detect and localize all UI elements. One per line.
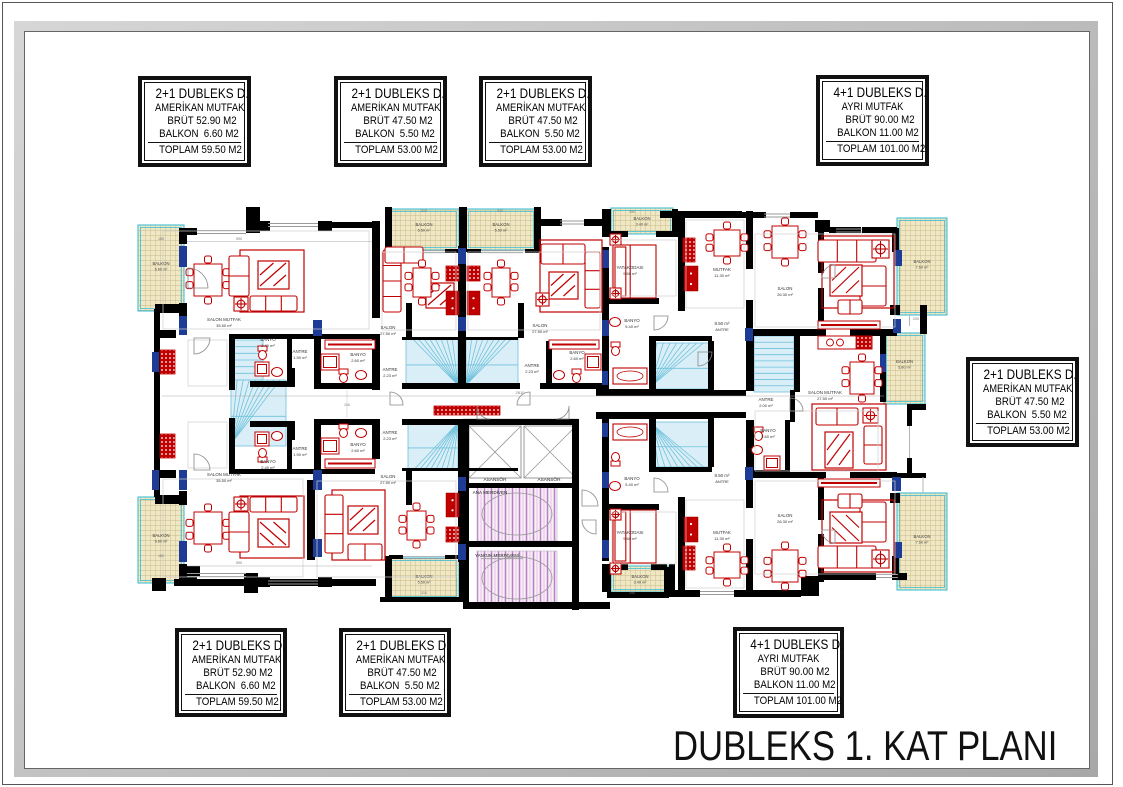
svg-text:6.60 m²: 6.60 m² [155, 540, 169, 544]
svg-text:SALON: SALON [533, 323, 548, 328]
svg-text:SALON: SALON [778, 286, 793, 291]
svg-text:BANYO: BANYO [624, 476, 640, 481]
svg-text:3.40 m²: 3.40 m² [634, 581, 648, 585]
svg-text:11.30 m²: 11.30 m² [714, 273, 730, 278]
svg-text:1.90 m²: 1.90 m² [293, 452, 307, 457]
svg-text:26.30 m²: 26.30 m² [777, 292, 793, 297]
svg-text:27.50 m²: 27.50 m² [380, 331, 396, 336]
svg-text:26.30 m²: 26.30 m² [777, 519, 793, 524]
svg-text:BALKON: BALKON [416, 222, 433, 227]
svg-text:2.40 m²: 2.40 m² [261, 343, 275, 348]
svg-text:BALKON: BALKON [914, 534, 931, 539]
svg-text:ASANSÖR: ASANSÖR [484, 476, 508, 482]
svg-text:ANTRE: ANTRE [759, 397, 774, 402]
svg-text:7.60 m²: 7.60 m² [916, 266, 930, 270]
svg-text:590: 590 [236, 561, 242, 565]
svg-text:590: 590 [236, 237, 242, 241]
svg-text:ANA MERDİVEN: ANA MERDİVEN [473, 489, 508, 495]
svg-text:BANYO: BANYO [260, 337, 276, 342]
svg-text:35.50 m²: 35.50 m² [216, 323, 232, 328]
svg-text:180: 180 [158, 554, 164, 558]
svg-text:ANTRE: ANTRE [293, 446, 308, 451]
svg-text:BALKON: BALKON [896, 359, 913, 364]
svg-text:180: 180 [158, 237, 164, 241]
svg-text:9.60 m²: 9.60 m² [623, 536, 637, 541]
svg-text:2.23 m²: 2.23 m² [525, 369, 539, 374]
svg-text:27.50 m²: 27.50 m² [532, 329, 548, 334]
svg-text:8.50 m²: 8.50 m² [715, 473, 730, 478]
svg-text:11.30 m²: 11.30 m² [714, 536, 730, 541]
svg-text:310: 310 [421, 591, 427, 595]
svg-text:MUTFAK: MUTFAK [713, 267, 731, 272]
svg-text:ANTRE: ANTRE [715, 479, 729, 484]
svg-text:310: 310 [497, 209, 503, 213]
svg-text:9.60 m²: 9.60 m² [623, 271, 637, 276]
svg-text:ASANSÖR: ASANSÖR [538, 476, 562, 482]
svg-text:5.40 m²: 5.40 m² [625, 482, 639, 487]
svg-text:ANTRE: ANTRE [383, 430, 398, 435]
svg-text:ANTRE: ANTRE [293, 349, 308, 354]
svg-text:SALON: SALON [381, 474, 396, 479]
svg-text:27.50 m²: 27.50 m² [380, 480, 396, 485]
svg-text:MUTFAK: MUTFAK [713, 530, 731, 535]
svg-text:BANYO: BANYO [624, 318, 640, 323]
svg-text:7.60 m²: 7.60 m² [916, 541, 930, 545]
svg-text:BALKON: BALKON [153, 533, 170, 538]
svg-text:BALKON: BALKON [634, 216, 651, 221]
svg-text:BANYO: BANYO [760, 428, 776, 433]
svg-text:5.50 m²: 5.50 m² [418, 581, 432, 585]
svg-text:SALON: SALON [778, 513, 793, 518]
svg-text:2.60 m²: 2.60 m² [761, 434, 775, 439]
svg-text:BANYO: BANYO [350, 352, 366, 357]
svg-text:2.23 m²: 2.23 m² [383, 436, 397, 441]
svg-text:BANYO: BANYO [350, 442, 366, 447]
svg-text:BALKON: BALKON [416, 574, 433, 579]
svg-text:35.50 m²: 35.50 m² [216, 478, 232, 483]
svg-text:2.60 m²: 2.60 m² [570, 356, 584, 361]
svg-text:ANTRE: ANTRE [715, 327, 729, 332]
svg-text:SALON MUTFAK: SALON MUTFAK [207, 317, 241, 322]
svg-text:5.80 m²: 5.80 m² [898, 366, 912, 370]
svg-text:27.50 m²: 27.50 m² [817, 396, 833, 401]
svg-text:2.60 m²: 2.60 m² [351, 358, 365, 363]
svg-text:ANTRE: ANTRE [525, 363, 540, 368]
svg-text:2810: 2810 [516, 390, 526, 395]
svg-text:SALON MUTFAK: SALON MUTFAK [207, 472, 241, 477]
svg-text:BALKON: BALKON [914, 259, 931, 264]
svg-text:BANYO: BANYO [260, 459, 276, 464]
svg-text:2.23 m²: 2.23 m² [383, 373, 397, 378]
svg-text:BALKON: BALKON [632, 574, 649, 579]
svg-text:YANGIN MERDİVENİ: YANGIN MERDİVENİ [475, 552, 519, 558]
svg-text:2.40 m²: 2.40 m² [261, 465, 275, 470]
svg-text:ANTRE: ANTRE [383, 367, 398, 372]
svg-text:290: 290 [629, 210, 635, 214]
svg-text:BALKON: BALKON [493, 222, 510, 227]
svg-text:2.60 m²: 2.60 m² [351, 448, 365, 453]
svg-text:BANYO: BANYO [569, 350, 585, 355]
svg-text:5.50 m²: 5.50 m² [495, 229, 509, 233]
svg-text:3.40 m²: 3.40 m² [636, 223, 650, 227]
svg-text:SALON MUTFAK: SALON MUTFAK [808, 390, 842, 395]
svg-text:6.60 m²: 6.60 m² [155, 268, 169, 272]
svg-text:310: 310 [421, 209, 427, 213]
svg-text:SALON: SALON [381, 325, 396, 330]
svg-text:8.50 m²: 8.50 m² [715, 321, 730, 326]
svg-text:5.50 m²: 5.50 m² [418, 229, 432, 233]
svg-text:1.90 m²: 1.90 m² [293, 355, 307, 360]
svg-text:BALKON: BALKON [153, 261, 170, 266]
svg-text:200: 200 [913, 317, 919, 321]
svg-text:290: 290 [629, 591, 635, 595]
svg-text:YATAKODASI: YATAKODASI [616, 265, 643, 270]
svg-text:YATAKODASI: YATAKODASI [616, 530, 643, 535]
svg-text:2.00 m²: 2.00 m² [759, 403, 773, 408]
svg-text:5.40 m²: 5.40 m² [625, 324, 639, 329]
